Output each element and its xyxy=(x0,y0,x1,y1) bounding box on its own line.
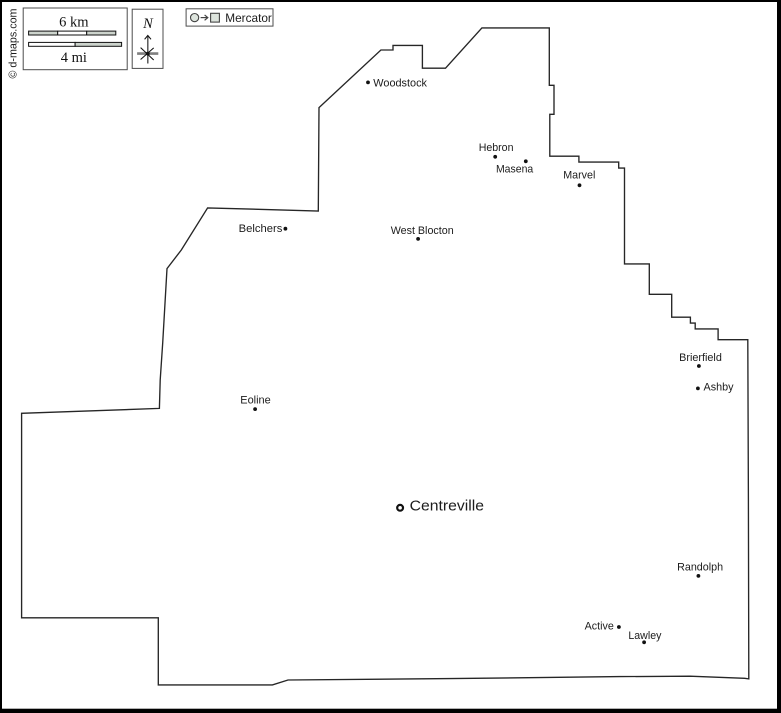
svg-text:Belchers: Belchers xyxy=(239,223,283,235)
svg-text:Centreville: Centreville xyxy=(410,497,484,514)
svg-text:Woodstock: Woodstock xyxy=(373,77,427,89)
svg-text:© d-maps.com: © d-maps.com xyxy=(8,8,20,78)
svg-text:Active: Active xyxy=(585,621,614,633)
svg-text:Masena: Masena xyxy=(496,163,534,175)
svg-text:Mercator: Mercator xyxy=(225,11,272,25)
svg-text:6 km: 6 km xyxy=(59,14,89,30)
svg-text:Marvel: Marvel xyxy=(563,170,595,182)
svg-text:4 mi: 4 mi xyxy=(61,50,87,66)
svg-text:Randolph: Randolph xyxy=(677,561,723,573)
svg-text:Eoline: Eoline xyxy=(240,395,271,407)
svg-text:Ashby: Ashby xyxy=(704,382,734,394)
svg-text:N: N xyxy=(142,16,154,32)
svg-text:Brierfield: Brierfield xyxy=(679,352,722,364)
svg-text:Hebron: Hebron xyxy=(479,142,514,154)
svg-text:Lawley: Lawley xyxy=(628,630,661,642)
svg-text:West Blocton: West Blocton xyxy=(391,225,454,237)
